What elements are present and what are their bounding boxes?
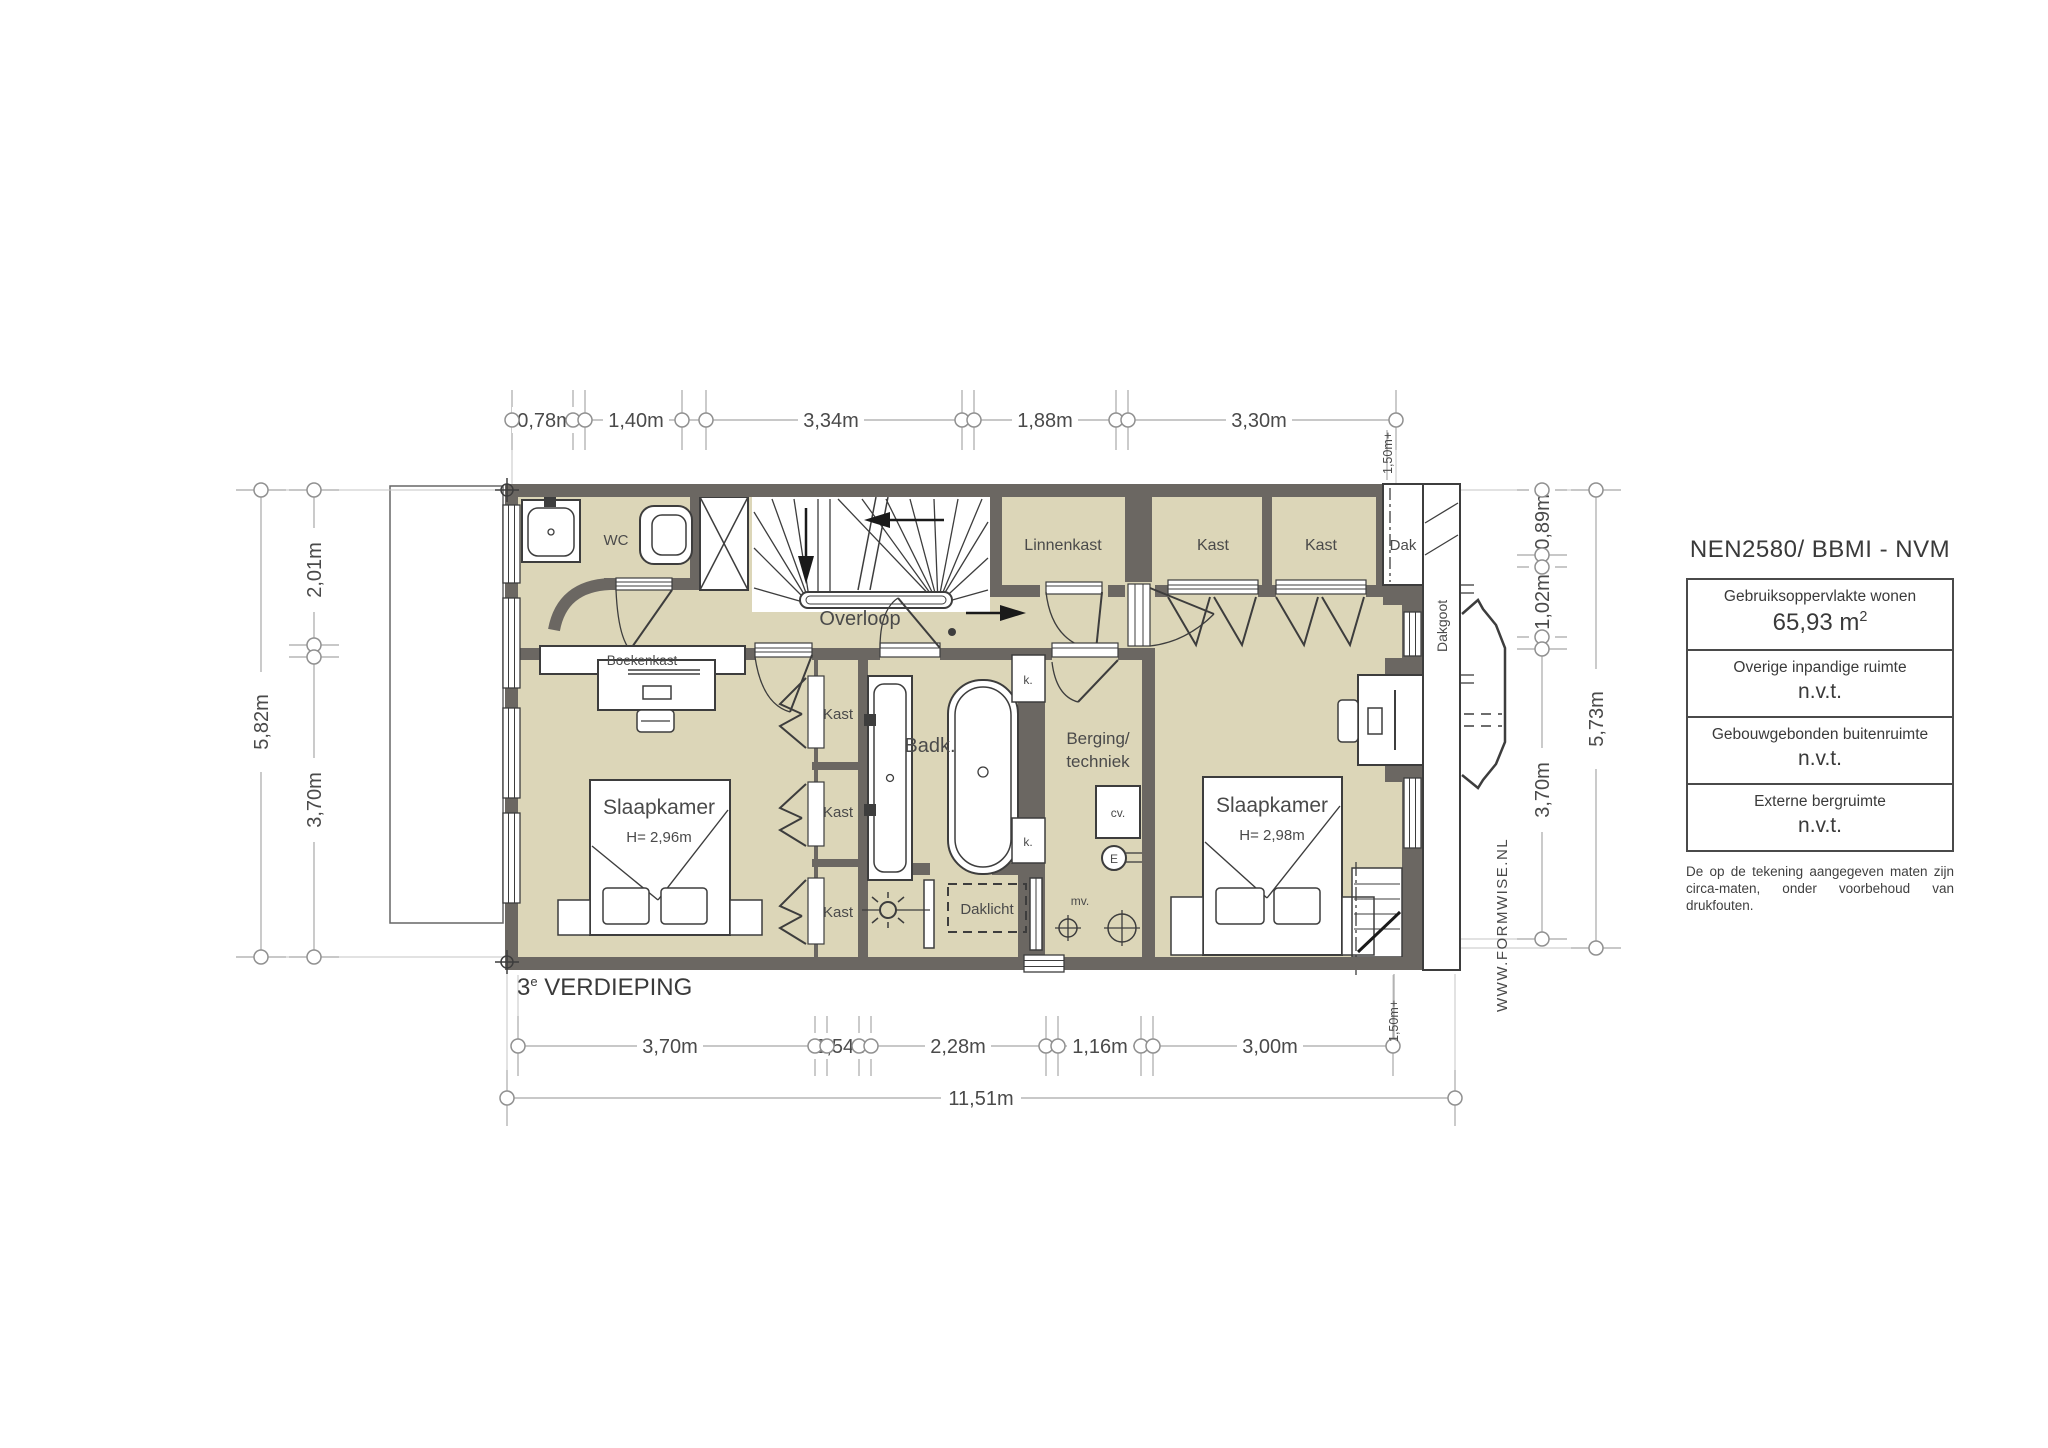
floor-title-text: VERDIEPING	[538, 974, 693, 1001]
room-label-dak: Dak	[1390, 537, 1417, 554]
table-row-value: n.v.t.	[1688, 677, 1952, 716]
disclaimer-line-2: circa-maten, onder voorbehoud van drukfo…	[1686, 881, 1954, 913]
room-label-overloop: Overloop	[819, 608, 900, 630]
table-row: Gebouwgebonden buitenruimte n.v.t.	[1688, 716, 1952, 783]
table-row-value: n.v.t.	[1688, 811, 1952, 850]
dim-right-seg-2: 3,70m	[1532, 762, 1554, 818]
disclaimer-text: De op de tekening aangegeven maten zijn …	[1686, 864, 1954, 915]
dim-left-seg-1: 3,70m	[304, 772, 326, 828]
room-label-kast-col-3: Kast	[823, 904, 854, 921]
dim-left-outer: 5,82m	[251, 694, 273, 750]
room-label-dakgoot: Dakgoot	[1434, 600, 1450, 652]
room-label-berging-2: techniek	[1066, 752, 1130, 771]
measurement-panel-title: NEN2580/ BBMI - NVM	[1686, 536, 1954, 564]
table-row-label: Gebouwgebonden buitenruimte	[1688, 718, 1952, 744]
room-label-boekenkast: Boekenkast	[607, 653, 678, 668]
room-label-kast-top-1: Kast	[1197, 537, 1230, 554]
floor-title-number: 3	[517, 974, 530, 1001]
table-row: Gebruiksoppervlakte wonen 65,93 m2	[1688, 580, 1952, 649]
dim-bottom-total: 11,51m	[948, 1088, 1013, 1110]
dormer-outline	[1462, 600, 1505, 788]
room-label-kast-top-2: Kast	[1305, 537, 1338, 554]
table-row: Overige inpandige ruimte n.v.t.	[1688, 649, 1952, 716]
floorplan-page: WC Overloop Linnenkast Kast Kast Dak Dak…	[0, 0, 2048, 1448]
dim-left-seg-0: 2,01m	[304, 542, 326, 598]
room-label-kast-col-1: Kast	[823, 706, 854, 723]
floor-title: 3e VERDIEPING	[517, 974, 692, 1002]
dim-right-seg-0: 0,89m	[1532, 494, 1554, 550]
dim-top-3: 1,88m	[1017, 410, 1073, 432]
dim-bottom-0: 3,70m	[642, 1036, 698, 1058]
table-row-label: Externe bergruimte	[1688, 785, 1952, 811]
dim-bottom-2: 2,28m	[930, 1036, 986, 1058]
room-label-linnenkast: Linnenkast	[1024, 537, 1102, 554]
dim-top-0: 0,78m	[517, 410, 573, 432]
dim-bottom-4: 3,00m	[1242, 1036, 1298, 1058]
dim-top-1: 1,40m	[608, 410, 664, 432]
table-row-value-text: 65,93 m	[1773, 609, 1860, 636]
room-label-slaapkamer-left: Slaapkamer	[603, 796, 715, 819]
room-label-berging-1: Berging/	[1066, 729, 1130, 748]
table-row-value: n.v.t.	[1688, 744, 1952, 783]
table-row: Externe bergruimte n.v.t.	[1688, 783, 1952, 850]
dim-right-seg-1: 1,02m	[1532, 574, 1554, 630]
table-row-value: 65,93 m2	[1688, 606, 1952, 649]
room-label-slaapkamer-right-height: H= 2,98m	[1239, 827, 1304, 844]
room-label-daklicht: Daklicht	[960, 901, 1014, 918]
table-row-value-sup: 2	[1859, 609, 1867, 625]
room-label-kast-col-2: Kast	[823, 804, 854, 821]
gutter-height-label-top: 1,50m+	[1381, 432, 1395, 474]
fixture-label-k-top: k.	[1023, 673, 1032, 687]
measurement-table: Gebruiksoppervlakte wonen 65,93 m2 Overi…	[1686, 578, 1954, 852]
watermark-url: WWW.FORMWISE.NL	[1494, 838, 1511, 1012]
room-label-slaapkamer-right: Slaapkamer	[1216, 794, 1328, 817]
dim-bottom-3: 1,16m	[1072, 1036, 1128, 1058]
shaft	[700, 497, 748, 590]
measurement-panel: NEN2580/ BBMI - NVM Gebruiksoppervlakte …	[1686, 536, 1954, 915]
dim-top-2: 3,34m	[803, 410, 859, 432]
fixture-label-cv: cv.	[1111, 806, 1125, 820]
fixture-label-k-bottom: k.	[1023, 835, 1032, 849]
floor-title-sup: e	[530, 974, 537, 989]
dim-right-outer: 5,73m	[1586, 691, 1608, 747]
table-row-label: Gebruiksoppervlakte wonen	[1688, 580, 1952, 606]
adjacent-roof-outline	[390, 486, 503, 923]
dim-top-4: 3,30m	[1231, 410, 1287, 432]
fixture-label-e: E	[1110, 852, 1118, 866]
room-label-badk: Badk.	[904, 735, 955, 757]
room-label-wc: WC	[604, 532, 629, 549]
table-row-label: Overige inpandige ruimte	[1688, 651, 1952, 677]
fixture-label-mv: mv.	[1071, 894, 1089, 908]
gutter-height-label-bottom: 1,50m+	[1387, 1000, 1401, 1042]
room-label-slaapkamer-left-height: H= 2,96m	[626, 829, 691, 846]
disclaimer-line-1: De op de tekening aangegeven maten zijn	[1686, 864, 1954, 879]
